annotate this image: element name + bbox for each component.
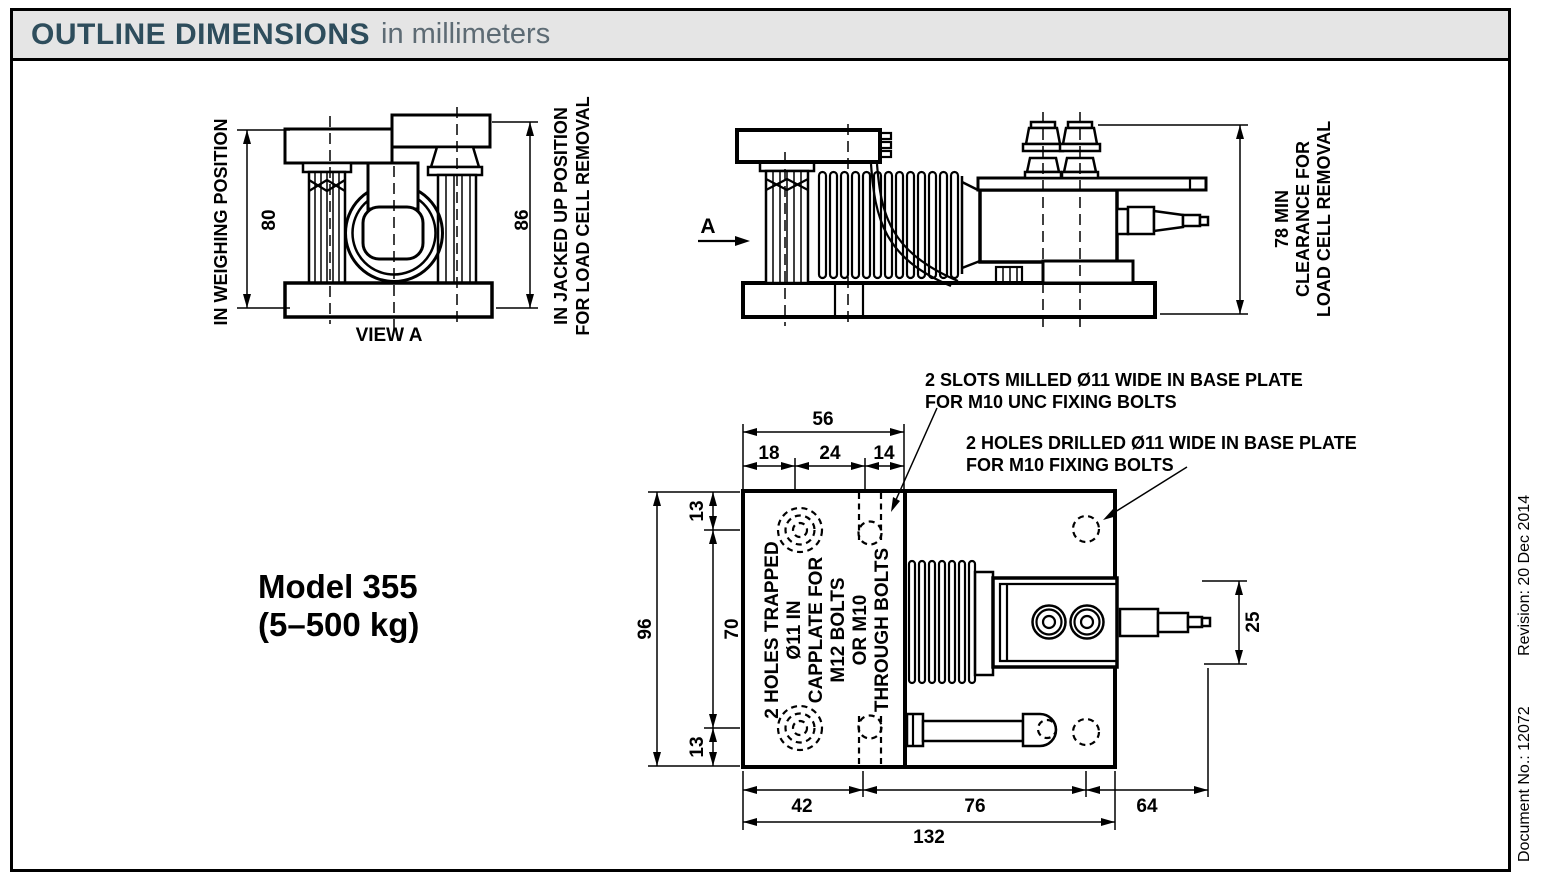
revision-date: Revision: 20 Dec 2014 [1516, 495, 1533, 656]
model-name: Model 355 [258, 568, 418, 605]
cap-plate-jacked [392, 115, 490, 147]
cap-plate-side [737, 130, 880, 162]
note-trapped-line1: 2 HOLES TRAPPED [762, 541, 783, 718]
side-view-drawing: A [698, 112, 1334, 330]
load-cell-body-side [980, 190, 1117, 262]
dim-13-top: 13 [687, 500, 708, 521]
note-trapped-line4: M12 BOLTS [828, 577, 849, 682]
page: OUTLINE DIMENSIONS in millimeters [0, 0, 1542, 881]
dim-13-bottom: 13 [687, 736, 708, 757]
dim-25: 25 [1243, 611, 1264, 633]
dim-70: 70 [722, 618, 743, 639]
dim-76: 76 [964, 796, 985, 817]
dim-56: 56 [812, 409, 833, 430]
dim-14: 14 [873, 443, 895, 464]
section-arrowhead-icon [735, 236, 750, 246]
dim-86: 86 [512, 209, 533, 230]
base-plate-side [743, 283, 1155, 317]
dim-42: 42 [791, 796, 812, 817]
dim-18: 18 [758, 443, 779, 464]
note-slots-line1: 2 SLOTS MILLED Ø11 WIDE IN BASE PLATE [925, 370, 1303, 390]
cap-plate-weighing [285, 129, 392, 163]
clearance-caption-2: LOAD CELL REMOVAL [1314, 121, 1334, 317]
bellows-side [819, 172, 958, 278]
note-trapped-line3: CAPPLATE FOR [806, 557, 827, 704]
jacking-bolts [1023, 122, 1100, 178]
caption-jacked-position-2: FOR LOAD CELL REMOVAL [573, 96, 593, 335]
note-trapped-line6: THROUGH BOLTS [872, 548, 893, 712]
top-mounting-plate [978, 178, 1206, 190]
view-a-label: VIEW A [356, 325, 423, 346]
note-trapped-line5: OR M10 [850, 595, 871, 666]
cable-connector-side [1117, 207, 1208, 234]
stem [368, 163, 418, 209]
ridged-foot [996, 267, 1022, 283]
document-number: Document No.: 12072 [1516, 706, 1533, 862]
support-block [1043, 261, 1133, 283]
note-slots-line2: FOR M10 UNC FIXING BOLTS [925, 392, 1177, 412]
technical-drawing: 80 86 IN WEIGHING POSITION IN JACKED UP … [0, 0, 1542, 881]
plan-view-drawing: 56 18 24 14 96 13 70 13 [635, 370, 1357, 848]
jacking-nut [431, 147, 479, 167]
note-holes-line2: FOR M10 FIXING BOLTS [966, 455, 1174, 475]
document-note: Document No.: 12072 Revision: 20 Dec 201… [1516, 495, 1534, 862]
dim-132: 132 [913, 827, 945, 848]
caption-weighing-position: IN WEIGHING POSITION [211, 118, 231, 325]
clearance-dim: 78 MIN [1272, 190, 1292, 248]
note-trapped-line2: Ø11 IN [784, 600, 805, 659]
model-capacity: (5–500 kg) [258, 606, 419, 643]
dim-24: 24 [819, 443, 841, 464]
base-plate-front [285, 283, 492, 317]
leader-slots [895, 408, 937, 502]
caption-jacked-position-1: IN JACKED UP POSITION [551, 107, 571, 325]
dim-96: 96 [635, 618, 656, 639]
load-button [363, 207, 423, 259]
clearance-caption-1: CLEARANCE FOR [1293, 141, 1313, 297]
dim-80: 80 [259, 209, 280, 230]
front-view-drawing: 80 86 IN WEIGHING POSITION IN JACKED UP … [211, 96, 593, 346]
dim-64: 64 [1136, 796, 1158, 817]
section-arrow-label: A [700, 215, 715, 238]
note-holes-line1: 2 HOLES DRILLED Ø11 WIDE IN BASE PLATE [966, 433, 1357, 453]
